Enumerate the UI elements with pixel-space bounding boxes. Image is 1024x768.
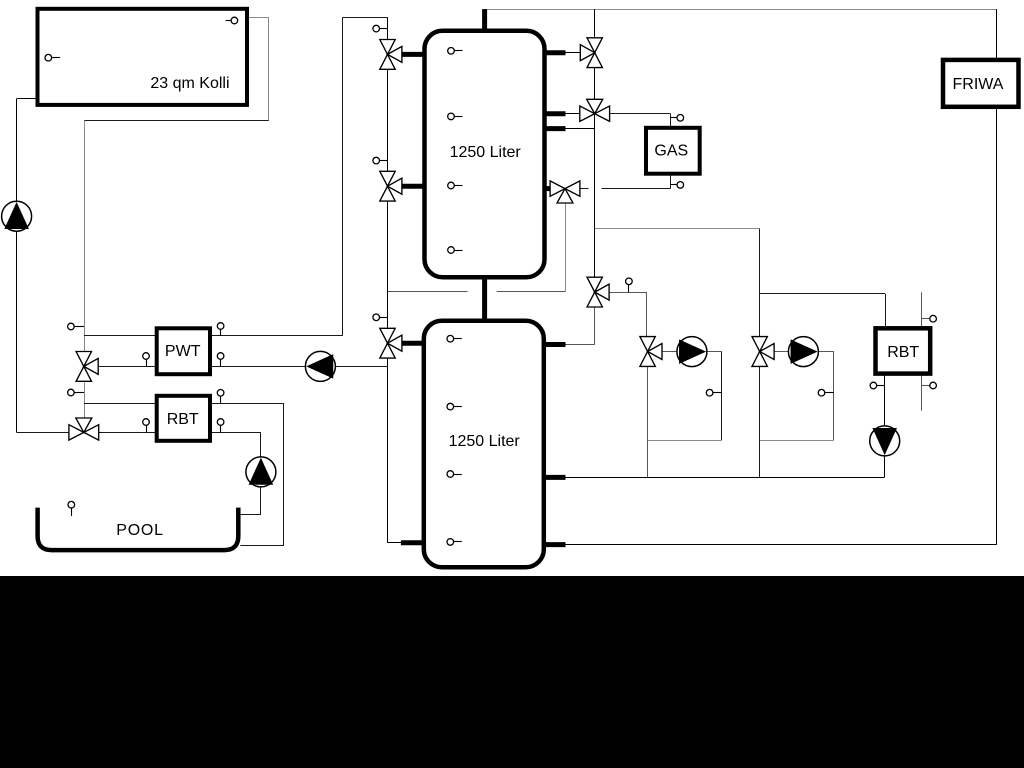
svg-text:RBT: RBT [167, 411, 199, 428]
svg-text:RBT: RBT [887, 344, 919, 361]
svg-text:1250 Liter: 1250 Liter [449, 433, 521, 450]
svg-text:PWT: PWT [165, 343, 201, 360]
svg-text:23 qm Kolli: 23 qm Kolli [150, 75, 229, 92]
svg-text:FRIWA: FRIWA [953, 76, 1004, 93]
svg-text:POOL: POOL [116, 522, 163, 539]
svg-text:GAS: GAS [654, 142, 688, 159]
svg-text:1250 Liter: 1250 Liter [450, 144, 522, 161]
